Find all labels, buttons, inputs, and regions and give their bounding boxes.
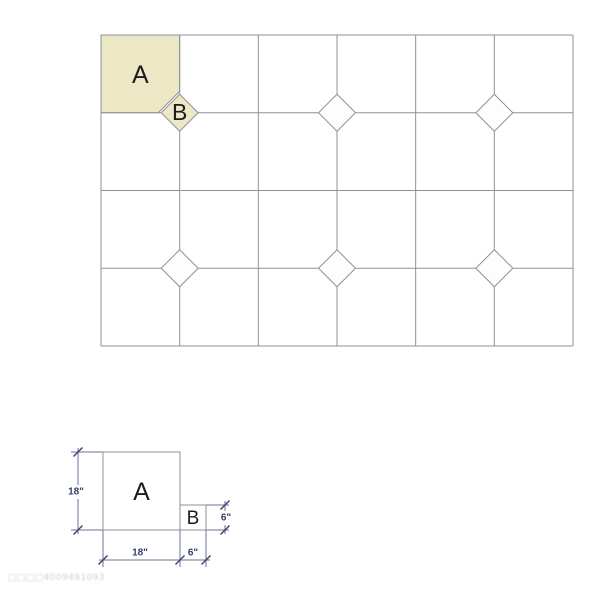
accent-diamond bbox=[476, 94, 513, 131]
dimension-label: 18" bbox=[132, 548, 148, 559]
accent-diamond bbox=[161, 250, 198, 287]
tile-a-label: A bbox=[132, 61, 149, 89]
tile-dimension-diagram: AB18"6"18"6" bbox=[66, 448, 236, 568]
tile-pattern-page: BA AB18"6"18"6" □□□□4009491093 bbox=[0, 0, 600, 600]
detail-square-b-label: B bbox=[187, 508, 200, 529]
tile-diagram-scene: BA AB18"6"18"6" bbox=[0, 0, 600, 600]
dimension-label: 18" bbox=[68, 487, 84, 498]
dimension-label: 6" bbox=[221, 513, 232, 524]
tile-b-label: B bbox=[172, 99, 187, 125]
detail-square-a-label: A bbox=[133, 478, 150, 506]
accent-diamond bbox=[319, 250, 356, 287]
dimension-label: 6" bbox=[188, 548, 199, 559]
accent-diamond bbox=[476, 250, 513, 287]
watermark: □□□□4009491093 bbox=[8, 573, 105, 587]
accent-diamond bbox=[319, 94, 356, 131]
tile-pattern-grid: BA bbox=[101, 35, 573, 346]
